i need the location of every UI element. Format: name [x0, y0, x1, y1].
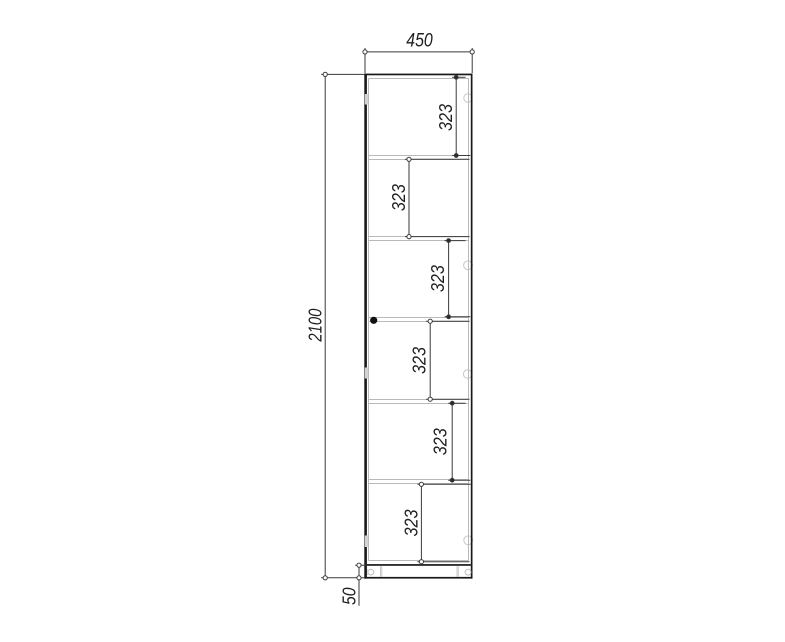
svg-text:2100: 2100 [305, 308, 326, 342]
svg-text:323: 323 [427, 264, 448, 292]
svg-text:323: 323 [408, 346, 429, 374]
svg-text:323: 323 [388, 183, 409, 211]
svg-text:323: 323 [435, 103, 456, 131]
svg-text:323: 323 [429, 428, 450, 456]
svg-text:323: 323 [400, 509, 421, 537]
svg-text:50: 50 [338, 587, 359, 605]
svg-text:450: 450 [406, 31, 433, 52]
